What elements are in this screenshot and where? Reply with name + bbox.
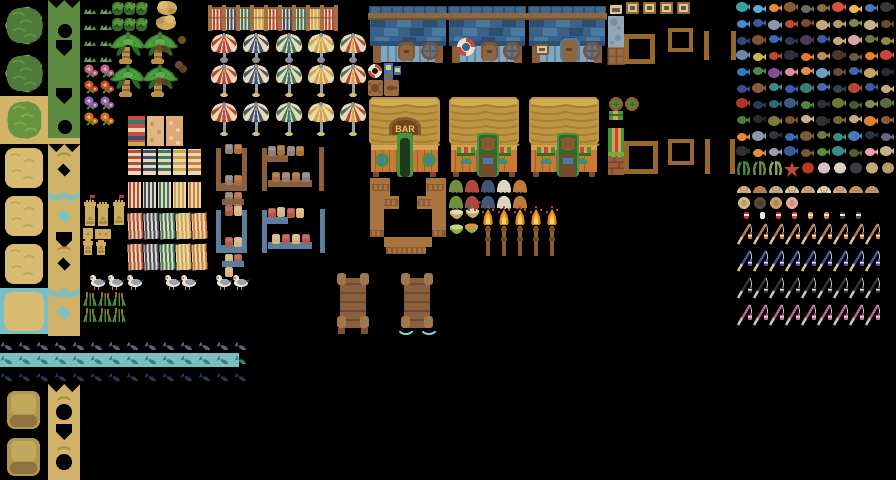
svg-text:BAR: BAR [395, 124, 415, 134]
